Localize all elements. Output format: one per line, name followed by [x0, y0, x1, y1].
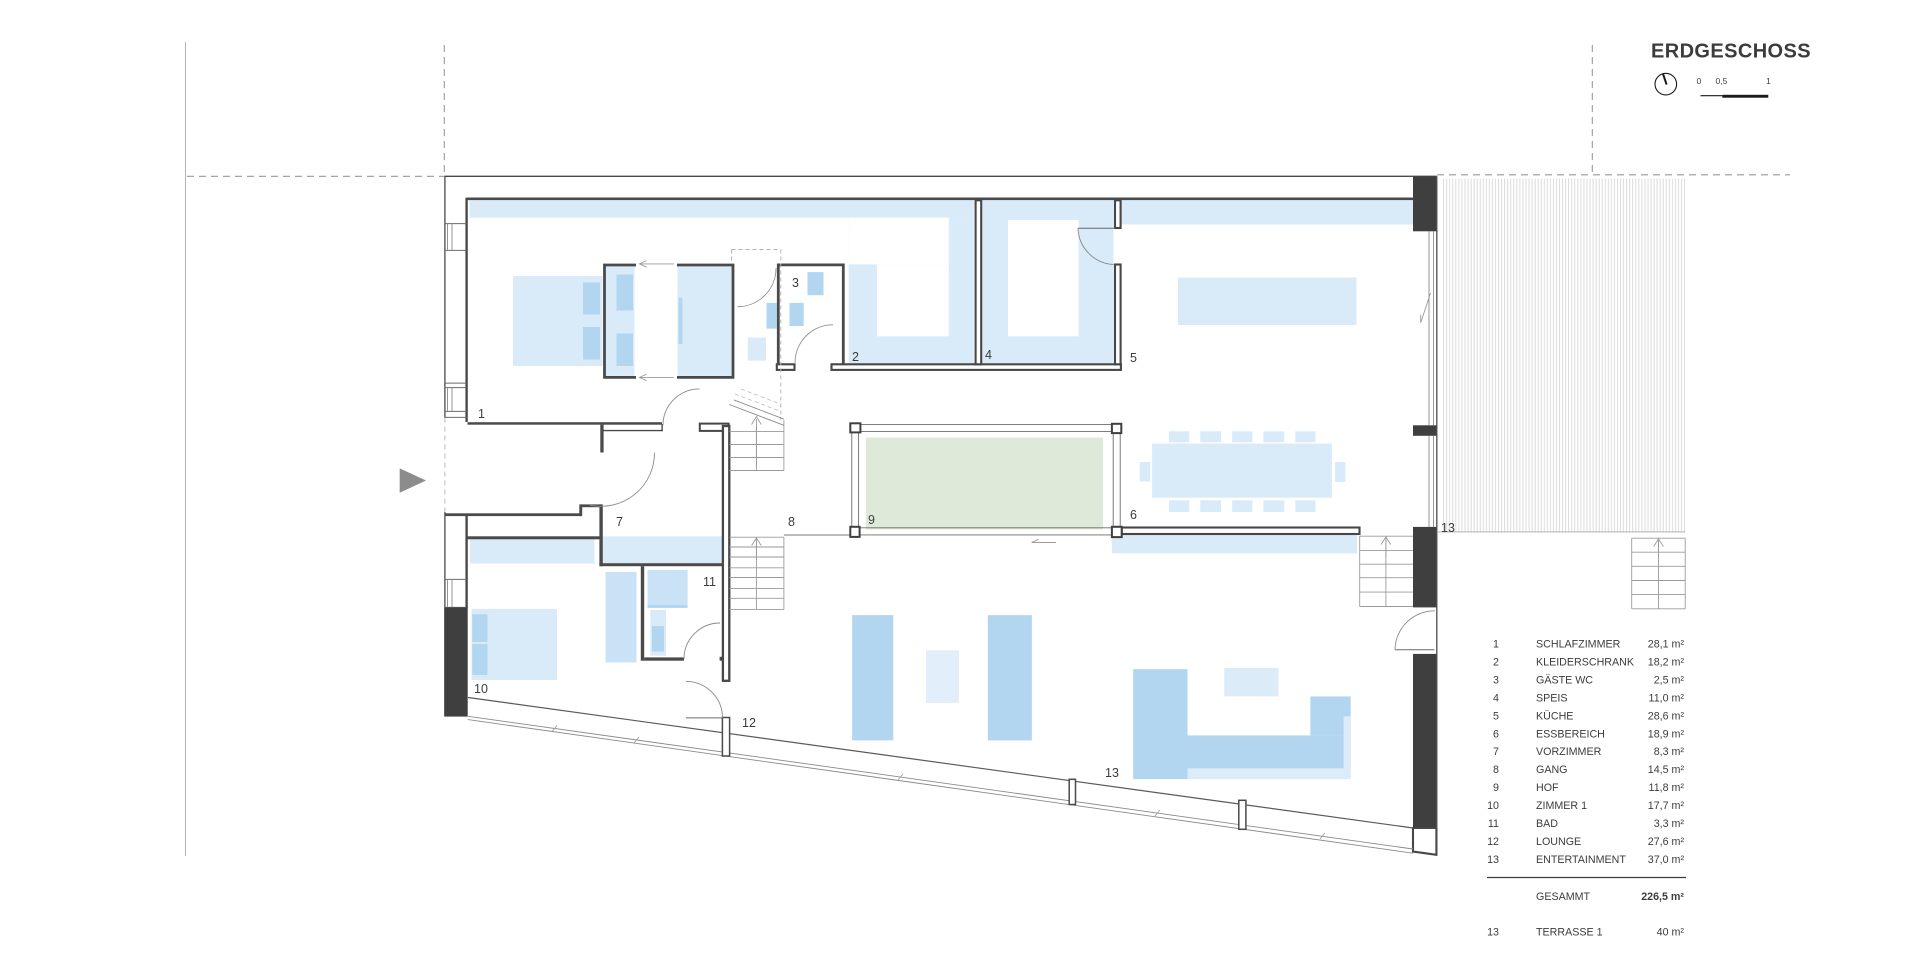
- svg-text:ENTERTAINMENT: ENTERTAINMENT: [1536, 854, 1626, 866]
- svg-text:6: 6: [1130, 508, 1137, 522]
- svg-text:27,6 m²: 27,6 m²: [1648, 836, 1685, 848]
- svg-text:226,5 m²: 226,5 m²: [1641, 891, 1684, 903]
- svg-text:3,3 m²: 3,3 m²: [1654, 818, 1685, 830]
- svg-text:LOUNGE: LOUNGE: [1536, 836, 1581, 848]
- svg-text:37,0 m²: 37,0 m²: [1648, 854, 1685, 866]
- svg-text:HOF: HOF: [1536, 782, 1559, 794]
- svg-text:KLEIDERSCHRANK: KLEIDERSCHRANK: [1536, 657, 1635, 669]
- svg-text:3: 3: [792, 276, 799, 290]
- svg-text:2: 2: [1493, 657, 1499, 669]
- svg-text:KÜCHE: KÜCHE: [1536, 710, 1573, 722]
- svg-text:11,0 m²: 11,0 m²: [1649, 692, 1685, 704]
- svg-text:BAD: BAD: [1536, 818, 1558, 830]
- svg-text:8: 8: [1493, 764, 1499, 776]
- svg-text:17,7 m²: 17,7 m²: [1648, 800, 1685, 812]
- svg-text:18,2 m²: 18,2 m²: [1648, 657, 1685, 669]
- svg-text:1: 1: [1766, 76, 1771, 86]
- svg-text:2: 2: [852, 350, 859, 364]
- svg-text:10: 10: [1487, 800, 1499, 812]
- svg-text:7: 7: [1493, 746, 1499, 758]
- svg-text:4: 4: [1493, 692, 1499, 704]
- svg-text:6: 6: [1493, 728, 1499, 740]
- svg-text:GÄSTE WC: GÄSTE WC: [1536, 674, 1593, 686]
- svg-text:GANG: GANG: [1536, 764, 1567, 776]
- svg-text:SCHLAFZIMMER: SCHLAFZIMMER: [1536, 639, 1621, 651]
- svg-text:3: 3: [1493, 674, 1499, 686]
- svg-text:12: 12: [1487, 836, 1499, 848]
- svg-text:18,9 m²: 18,9 m²: [1648, 728, 1685, 740]
- svg-text:ESSBEREICH: ESSBEREICH: [1536, 728, 1605, 740]
- svg-text:13: 13: [1487, 926, 1499, 938]
- svg-text:28,6 m²: 28,6 m²: [1648, 710, 1685, 722]
- svg-text:5: 5: [1493, 710, 1499, 722]
- svg-text:13: 13: [1487, 854, 1499, 866]
- svg-text:4: 4: [985, 348, 992, 362]
- svg-text:11: 11: [1488, 818, 1499, 830]
- svg-text:SPEIS: SPEIS: [1536, 692, 1567, 704]
- svg-text:2,5 m²: 2,5 m²: [1654, 674, 1685, 686]
- svg-text:13: 13: [1105, 766, 1119, 780]
- svg-text:12: 12: [742, 716, 756, 730]
- svg-text:5: 5: [1130, 351, 1137, 365]
- svg-text:1: 1: [1493, 639, 1499, 651]
- svg-text:7: 7: [616, 515, 623, 529]
- svg-text:11,8 m²: 11,8 m²: [1649, 782, 1685, 794]
- svg-text:GESAMMT: GESAMMT: [1536, 891, 1591, 903]
- svg-text:9: 9: [868, 513, 875, 527]
- svg-text:10: 10: [474, 682, 488, 696]
- svg-text:ZIMMER 1: ZIMMER 1: [1536, 800, 1587, 812]
- svg-text:TERRASSE 1: TERRASSE 1: [1536, 926, 1603, 938]
- svg-text:1: 1: [478, 407, 485, 421]
- svg-text:ERDGESCHOSS: ERDGESCHOSS: [1651, 41, 1811, 63]
- svg-text:14,5 m²: 14,5 m²: [1648, 764, 1685, 776]
- svg-text:0: 0: [1697, 76, 1702, 86]
- svg-text:40 m²: 40 m²: [1657, 926, 1685, 938]
- svg-text:9: 9: [1493, 782, 1499, 794]
- svg-text:8: 8: [788, 515, 795, 529]
- svg-text:28,1 m²: 28,1 m²: [1648, 639, 1685, 651]
- svg-text:11: 11: [703, 575, 716, 589]
- svg-text:VORZIMMER: VORZIMMER: [1536, 746, 1602, 758]
- svg-text:0,5: 0,5: [1716, 76, 1728, 86]
- svg-text:8,3 m²: 8,3 m²: [1654, 746, 1685, 758]
- svg-text:13: 13: [1441, 521, 1455, 535]
